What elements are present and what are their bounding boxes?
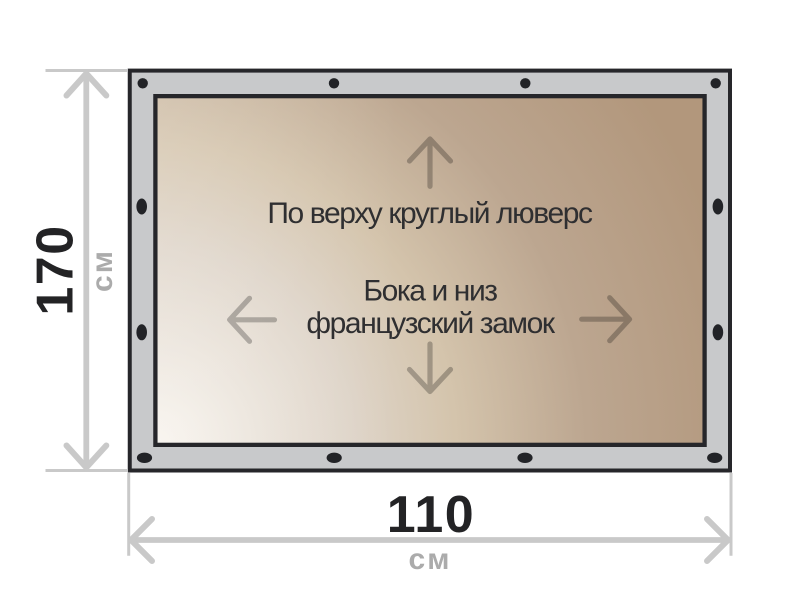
svg-text:см: см (409, 543, 452, 576)
svg-text:По верху круглый люверс: По верху круглый люверс (267, 197, 593, 230)
svg-text:Бока и низ: Бока и низ (363, 275, 497, 308)
svg-text:110: 110 (387, 486, 475, 544)
svg-text:см: см (86, 249, 119, 292)
svg-text:французский замок: французский замок (306, 307, 556, 340)
svg-text:170: 170 (27, 224, 85, 315)
